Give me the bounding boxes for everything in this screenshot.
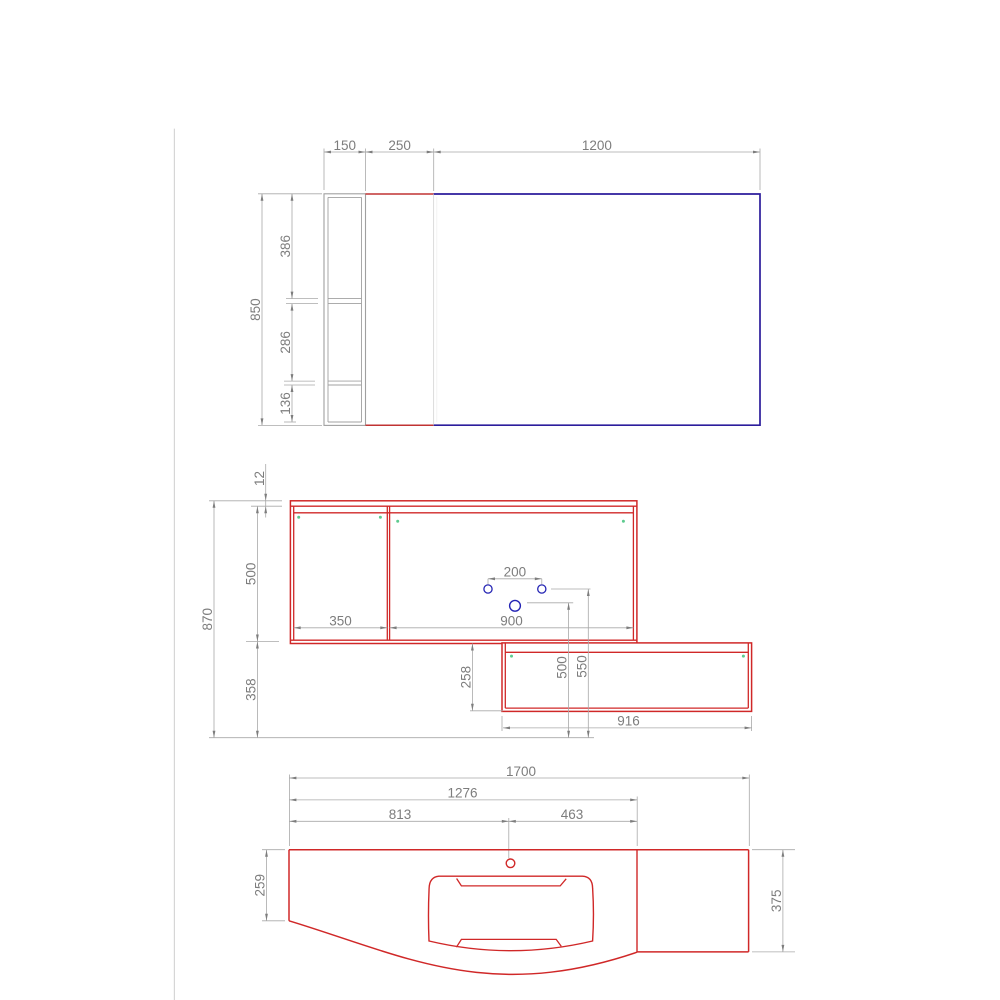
svg-text:813: 813 <box>389 807 412 822</box>
svg-text:375: 375 <box>769 890 784 913</box>
svg-text:150: 150 <box>333 138 356 153</box>
svg-text:870: 870 <box>200 608 215 631</box>
svg-text:916: 916 <box>617 713 640 728</box>
svg-text:500: 500 <box>244 563 259 586</box>
svg-text:136: 136 <box>278 392 293 415</box>
svg-text:286: 286 <box>278 331 293 354</box>
svg-text:463: 463 <box>561 807 584 822</box>
svg-text:500: 500 <box>555 656 570 679</box>
svg-text:386: 386 <box>278 235 293 258</box>
svg-text:259: 259 <box>252 874 267 897</box>
svg-text:1276: 1276 <box>447 786 477 801</box>
svg-text:850: 850 <box>248 298 263 321</box>
svg-text:1700: 1700 <box>506 764 536 779</box>
svg-text:550: 550 <box>574 655 589 678</box>
svg-text:250: 250 <box>388 138 411 153</box>
svg-text:358: 358 <box>244 678 259 701</box>
svg-text:12: 12 <box>252 471 267 486</box>
svg-text:900: 900 <box>500 614 523 629</box>
svg-text:1200: 1200 <box>582 138 612 153</box>
svg-text:350: 350 <box>329 614 352 629</box>
svg-text:258: 258 <box>458 666 473 689</box>
svg-text:200: 200 <box>504 565 527 580</box>
